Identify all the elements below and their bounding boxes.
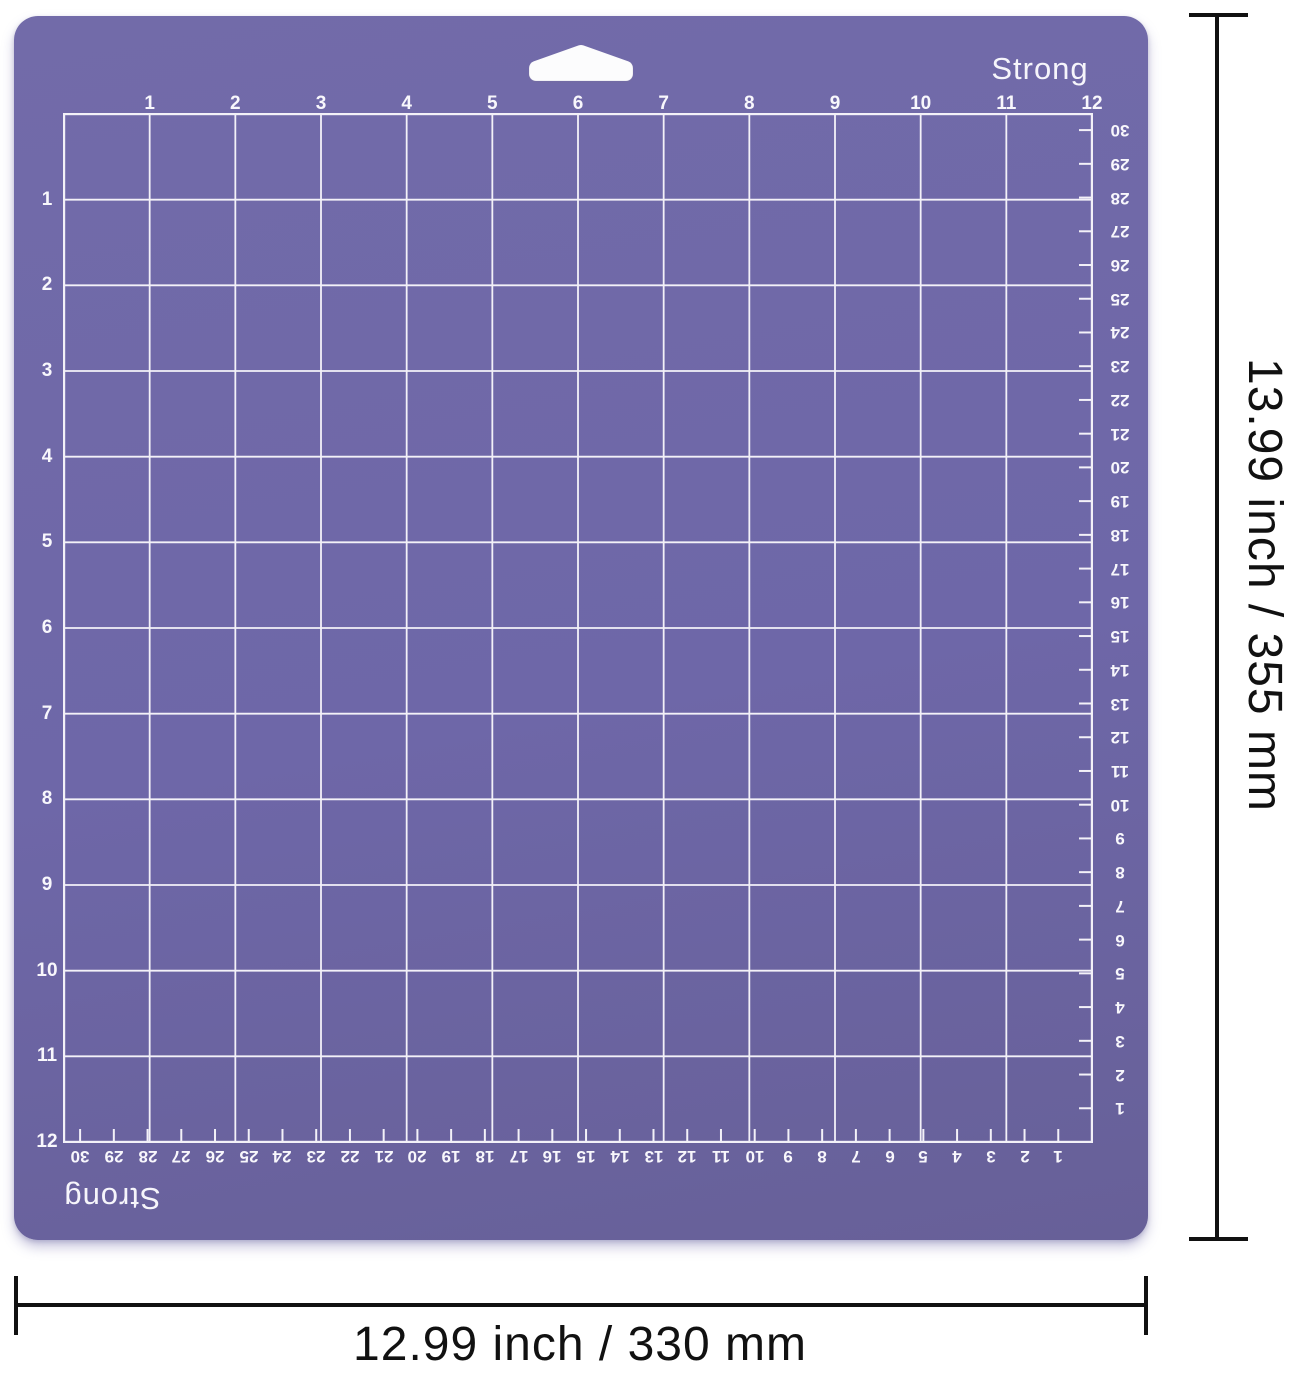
ruler-number: 8 [744,93,755,115]
ruler-number: 7 [1115,896,1124,916]
height-dimension-cap-bottom [1189,1237,1248,1241]
ruler-number: 5 [487,93,498,115]
ruler-number: 9 [1115,828,1124,848]
ruler-number: 10 [910,93,931,115]
ruler-number: 17 [509,1146,528,1166]
ruler-number: 21 [1111,424,1130,444]
ruler-number: 1 [144,93,155,115]
ruler-number: 11 [1111,761,1129,781]
ruler-number: 26 [1111,255,1130,275]
ruler-number: 28 [138,1146,157,1166]
width-dimension-line [16,1303,1148,1307]
ruler-number: 24 [1111,322,1130,342]
ruler-number: 4 [1115,997,1124,1017]
ruler-number: 6 [885,1146,894,1166]
inch-grid [63,113,1093,1143]
ruler-number: 23 [1111,356,1130,376]
ruler-number: 10 [745,1146,764,1166]
ruler-number: 29 [104,1146,123,1166]
ruler-number: 7 [658,93,669,115]
height-dimension-label: 13.99 inch / 355 mm [1237,358,1292,812]
ruler-number: 14 [1111,660,1130,680]
ruler-number: 6 [42,617,53,639]
width-dimension-label: 12.99 inch / 330 mm [0,1317,1160,1372]
ruler-number: 4 [952,1146,961,1166]
ruler-number: 12 [1081,93,1102,115]
ruler-number: 9 [42,874,53,896]
ruler-number: 17 [1111,559,1130,579]
ruler-number: 2 [1115,1065,1124,1085]
ruler-number: 21 [374,1146,393,1166]
ruler-number: 4 [401,93,412,115]
ruler-number: 27 [172,1146,191,1166]
ruler-number: 12 [36,1131,57,1153]
ruler-number: 13 [1111,694,1130,714]
ruler-number: 20 [408,1146,427,1166]
ruler-number: 3 [986,1146,995,1166]
ruler-number: 3 [1115,1031,1124,1051]
ruler-number: 5 [42,531,53,553]
ruler-number: 8 [1115,862,1124,882]
ruler-number: 3 [42,360,53,382]
ruler-number: 18 [1111,525,1130,545]
brand-label-bottom: Strong [63,1180,160,1216]
ruler-number: 25 [239,1146,258,1166]
ruler-number: 10 [1111,795,1130,815]
ruler-number: 8 [817,1146,826,1166]
ruler-number: 8 [42,788,53,810]
ruler-number: 30 [71,1146,90,1166]
cutting-mat: Strong Strong 123456789101112 1234567891… [14,16,1148,1240]
ruler-number: 1 [1054,1146,1063,1166]
ruler-number: 2 [1020,1146,1029,1166]
ruler-number: 2 [42,274,53,296]
ruler-number: 19 [442,1146,461,1166]
ruler-number: 16 [543,1146,562,1166]
ruler-number: 22 [1111,390,1130,410]
ruler-number: 4 [42,446,53,468]
hanging-hole [516,32,646,92]
height-dimension-line [1215,13,1219,1241]
ruler-number: 25 [1111,289,1130,309]
ruler-number: 24 [273,1146,292,1166]
ruler-number: 11 [712,1146,730,1166]
ruler-number: 16 [1111,592,1130,612]
ruler-number: 22 [340,1146,359,1166]
ruler-number: 12 [1111,727,1130,747]
ruler-number: 27 [1111,221,1130,241]
ruler-number: 12 [678,1146,697,1166]
ruler-number: 7 [851,1146,860,1166]
ruler-number: 10 [36,960,57,982]
ruler-number: 6 [573,93,584,115]
ruler-number: 6 [1115,930,1124,950]
ruler-number: 5 [1115,963,1124,983]
ruler-number: 2 [230,93,241,115]
ruler-number: 18 [475,1146,494,1166]
ruler-number: 20 [1111,457,1130,477]
ruler-number: 15 [1111,626,1130,646]
ruler-number: 28 [1111,188,1130,208]
ruler-number: 23 [307,1146,326,1166]
ruler-number: 3 [316,93,327,115]
ruler-number: 19 [1111,491,1130,511]
ruler-number: 9 [830,93,841,115]
ruler-number: 5 [919,1146,928,1166]
ruler-number: 1 [1115,1098,1124,1118]
ruler-number: 1 [42,189,53,211]
ruler-number: 30 [1111,120,1130,140]
ruler-number: 11 [996,93,1016,115]
ruler-number: 29 [1111,154,1130,174]
brand-label-top: Strong [991,51,1088,87]
product-diagram: Strong Strong 123456789101112 1234567891… [0,0,1299,1374]
ruler-number: 26 [206,1146,225,1166]
ruler-number: 7 [42,703,53,725]
ruler-number: 11 [37,1045,57,1067]
ruler-number: 14 [610,1146,629,1166]
ruler-number: 13 [644,1146,663,1166]
height-dimension-cap-top [1189,13,1248,17]
ruler-number: 15 [577,1146,596,1166]
ruler-number: 9 [784,1146,793,1166]
